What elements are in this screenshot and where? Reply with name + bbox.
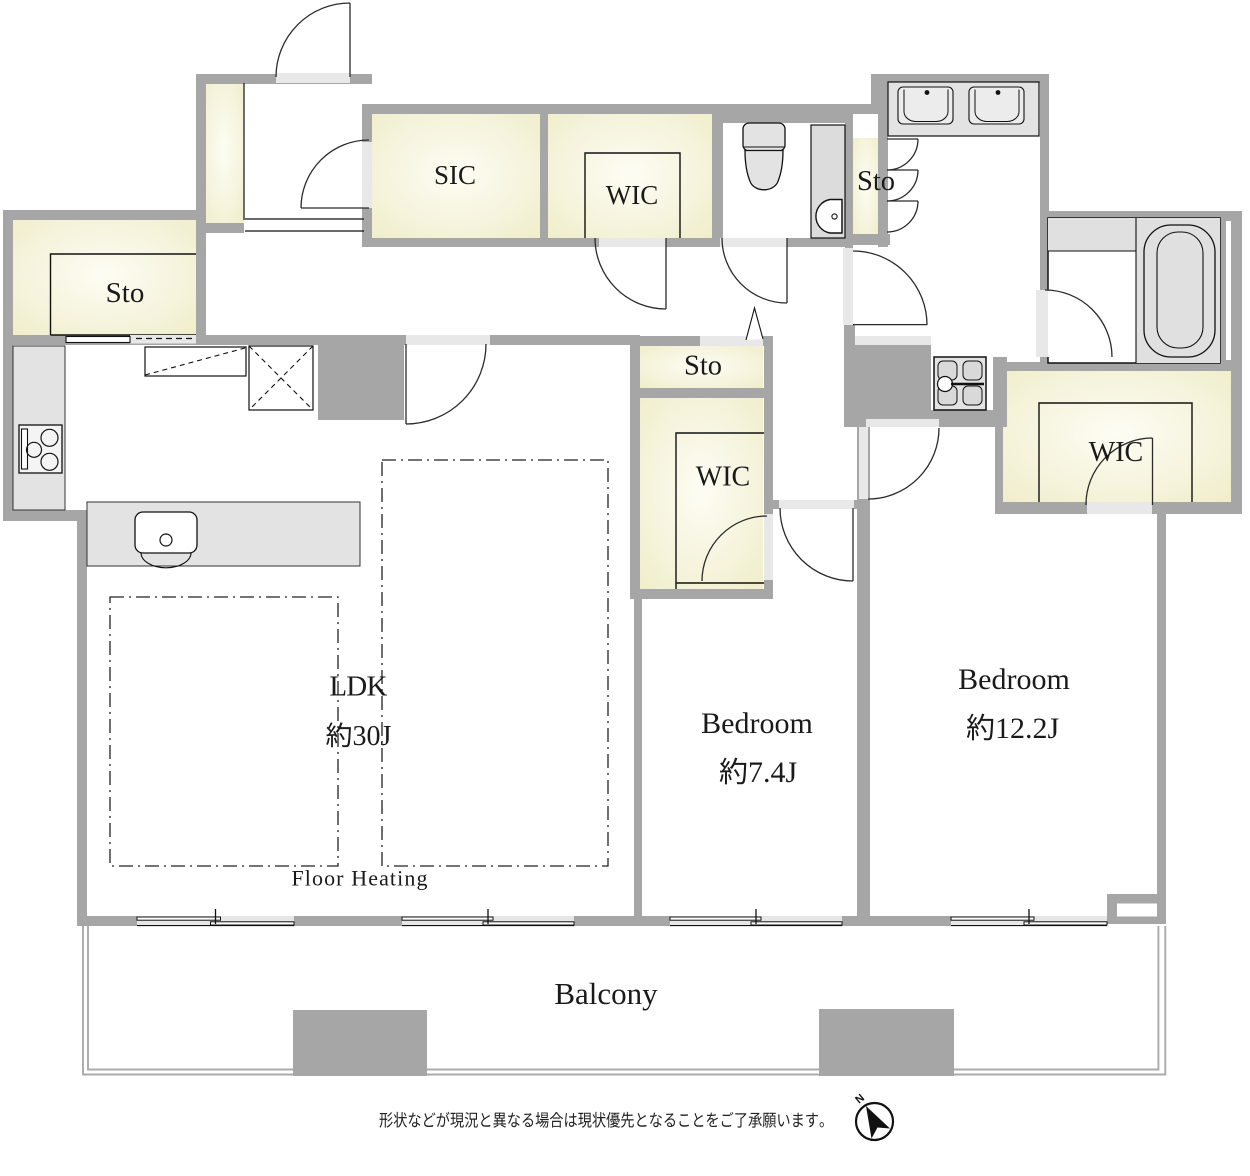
svg-text:Bedroom: Bedroom [958,663,1070,696]
svg-text:12.2J: 12.2J [995,712,1060,745]
svg-text:WIC: WIC [696,462,750,493]
svg-text:LDK: LDK [329,671,387,703]
svg-text:7.4J: 7.4J [748,756,798,789]
svg-text:Sto: Sto [857,166,895,197]
svg-text:WIC: WIC [606,180,658,210]
svg-text:Sto: Sto [684,351,722,382]
svg-text:SIC: SIC [434,160,476,190]
svg-text:Balcony: Balcony [554,976,658,1011]
svg-text:WIC: WIC [1089,437,1143,468]
svg-text:Sto: Sto [106,277,145,309]
svg-text:30J: 30J [353,721,392,752]
svg-text:Bedroom: Bedroom [701,707,813,740]
svg-text:Floor Heating: Floor Heating [291,866,428,891]
